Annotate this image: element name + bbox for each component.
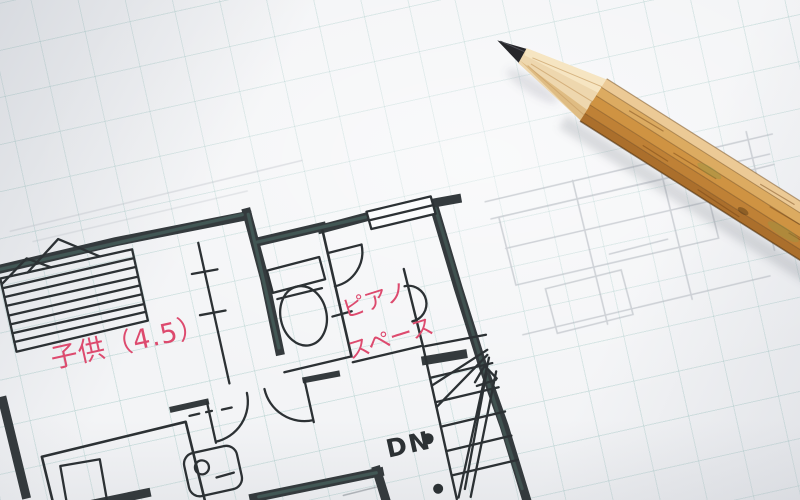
graph-paper-grid xyxy=(0,0,800,500)
photo-floorplan-sketch: 子供（4.5） ピアノ スペース DN xyxy=(0,0,800,500)
